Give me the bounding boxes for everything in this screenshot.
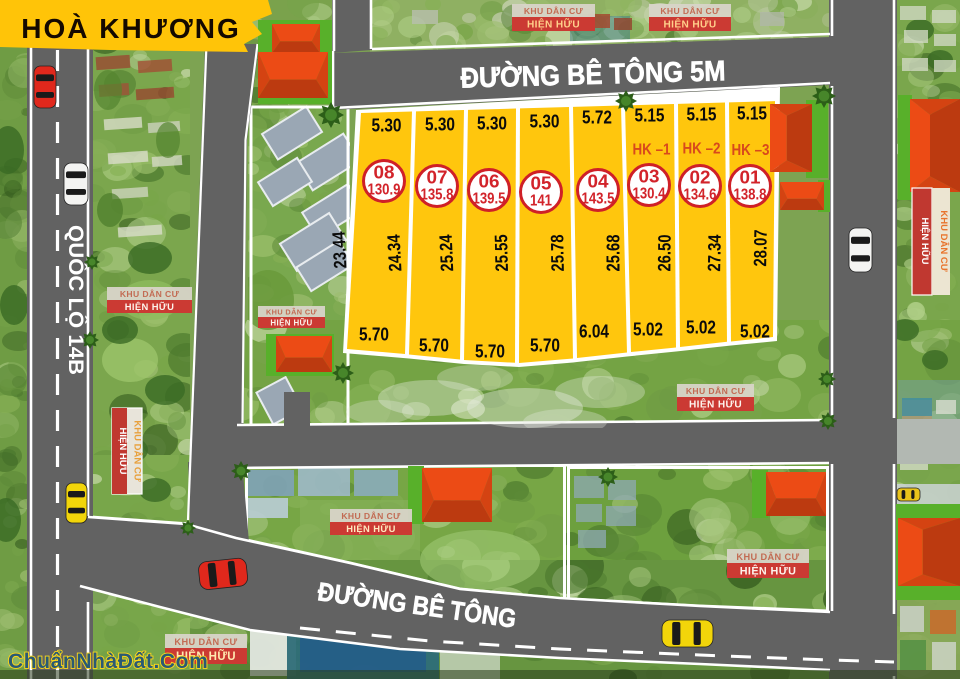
- svg-text:KHU DÂN CƯ: KHU DÂN CƯ: [174, 636, 237, 647]
- svg-text:HIỆN HỮU: HIỆN HỮU: [740, 564, 797, 577]
- svg-text:28.07: 28.07: [750, 229, 771, 266]
- svg-text:HIỆN HỮU: HIỆN HỮU: [919, 218, 931, 265]
- svg-text:141: 141: [530, 193, 552, 210]
- svg-text:139.5: 139.5: [473, 191, 506, 208]
- svg-text:5.02: 5.02: [686, 318, 716, 338]
- svg-text:HIỆN HỮU: HIỆN HỮU: [270, 318, 312, 327]
- svg-text:135.8: 135.8: [421, 187, 454, 204]
- svg-text:24.34: 24.34: [384, 234, 406, 272]
- svg-text:HIỆN HỮU: HIỆN HỮU: [663, 18, 716, 31]
- svg-text:HIỆN HỮU: HIỆN HỮU: [346, 523, 396, 534]
- svg-text:5.72: 5.72: [582, 108, 612, 128]
- svg-text:5.30: 5.30: [530, 112, 560, 132]
- svg-text:130.4: 130.4: [633, 186, 666, 203]
- svg-text:KHU DÂN CƯ: KHU DÂN CƯ: [524, 5, 584, 16]
- svg-text:HIỆN HỮU: HIỆN HỮU: [527, 18, 580, 31]
- svg-text:5.70: 5.70: [419, 336, 449, 356]
- svg-text:KHU DÂN CƯ: KHU DÂN CƯ: [660, 5, 720, 16]
- svg-text:6.04: 6.04: [579, 322, 609, 342]
- svg-text:5.70: 5.70: [359, 325, 389, 345]
- svg-text:01: 01: [740, 168, 761, 188]
- svg-text:5.15: 5.15: [687, 105, 717, 125]
- svg-text:25.78: 25.78: [547, 234, 568, 271]
- svg-text:25.68: 25.68: [604, 235, 624, 272]
- svg-text:HK –3: HK –3: [732, 142, 770, 159]
- svg-text:138.8: 138.8: [734, 187, 767, 204]
- svg-text:5.02: 5.02: [633, 320, 663, 340]
- svg-text:HIỆN HỮU: HIỆN HỮU: [125, 301, 175, 312]
- svg-text:5.30: 5.30: [477, 114, 507, 134]
- svg-text:KHU DÂN CƯ: KHU DÂN CƯ: [132, 420, 144, 481]
- svg-text:07: 07: [427, 168, 448, 188]
- svg-text:ChuẩnNhàĐất.Com: ChuẩnNhàĐất.Com: [8, 650, 208, 673]
- svg-text:KHU DÂN CƯ: KHU DÂN CƯ: [120, 288, 180, 299]
- svg-text:26.50: 26.50: [654, 234, 674, 271]
- svg-text:HK –2: HK –2: [683, 141, 721, 158]
- svg-text:134.6: 134.6: [684, 187, 717, 204]
- svg-text:03: 03: [639, 167, 660, 187]
- svg-text:143.5: 143.5: [582, 191, 615, 208]
- svg-text:5.70: 5.70: [475, 342, 505, 362]
- svg-text:KHU DÂN CƯ: KHU DÂN CƯ: [938, 210, 950, 271]
- svg-text:5.02: 5.02: [740, 322, 770, 342]
- svg-text:06: 06: [479, 172, 500, 192]
- svg-text:KHU DÂN CƯ: KHU DÂN CƯ: [341, 510, 401, 521]
- svg-text:5.70: 5.70: [530, 336, 560, 356]
- svg-text:08: 08: [374, 163, 395, 183]
- svg-text:KHU DÂN CƯ: KHU DÂN CƯ: [266, 308, 318, 317]
- svg-text:130.9: 130.9: [368, 182, 401, 199]
- svg-text:KHU DÂN CƯ: KHU DÂN CƯ: [736, 551, 799, 562]
- svg-text:HOÀ KHƯƠNG: HOÀ KHƯƠNG: [21, 13, 241, 44]
- svg-text:05: 05: [531, 174, 552, 194]
- svg-text:04: 04: [588, 172, 609, 192]
- svg-text:KHU DÂN CƯ: KHU DÂN CƯ: [686, 385, 746, 396]
- svg-text:HK –1: HK –1: [633, 142, 671, 159]
- svg-text:27.34: 27.34: [704, 234, 725, 271]
- svg-text:5.15: 5.15: [737, 104, 767, 124]
- svg-text:HIỆN HỮU: HIỆN HỮU: [117, 428, 129, 475]
- svg-text:02: 02: [690, 168, 711, 188]
- svg-text:HIỆN HỮU: HIỆN HỮU: [689, 398, 742, 411]
- svg-text:25.24: 25.24: [436, 234, 458, 272]
- svg-text:23.44: 23.44: [329, 231, 351, 269]
- svg-text:QUỐC LỘ 14B: QUỐC LỘ 14B: [64, 225, 88, 375]
- svg-text:5.15: 5.15: [635, 106, 665, 126]
- svg-text:5.30: 5.30: [425, 115, 455, 135]
- svg-text:5.30: 5.30: [372, 116, 402, 136]
- svg-text:25.55: 25.55: [491, 234, 512, 272]
